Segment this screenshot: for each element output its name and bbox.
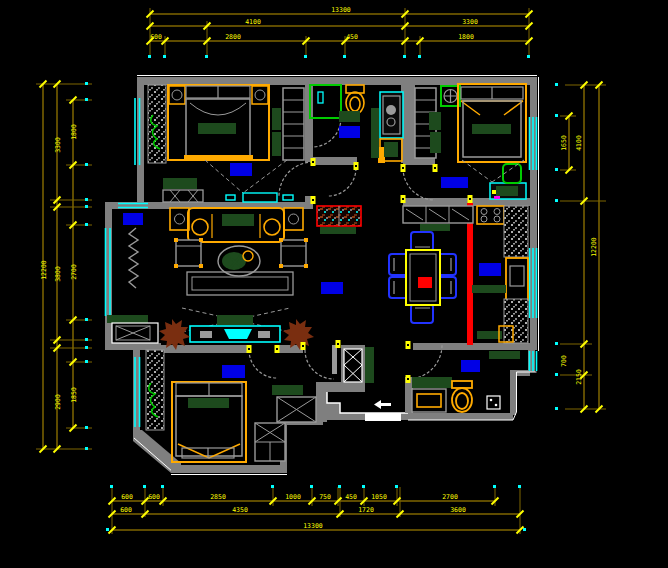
dimension-chain-right: 1650 4100 700 2150 12200 bbox=[555, 82, 606, 413]
room-label-kitchen bbox=[479, 263, 501, 276]
highlighted-wall-red bbox=[467, 203, 473, 345]
dining-chair bbox=[411, 232, 433, 251]
toilet-icon bbox=[452, 381, 472, 412]
sofa-cushion bbox=[222, 214, 254, 226]
door-arc bbox=[305, 350, 334, 379]
room-label-bathroom-bottom bbox=[461, 360, 480, 372]
dim-label: 600 bbox=[150, 33, 162, 41]
dim-label: 13300 bbox=[331, 6, 351, 14]
closet-hatch bbox=[148, 85, 166, 163]
arrow-icon bbox=[374, 400, 391, 409]
dim-label: 2900 bbox=[54, 394, 62, 410]
dim-label: 600 bbox=[120, 506, 132, 514]
dim-label: 2700 bbox=[442, 493, 458, 501]
door-arc bbox=[279, 162, 313, 196]
door-leaf bbox=[332, 345, 337, 374]
plant-icon bbox=[243, 251, 253, 261]
tv bbox=[217, 315, 253, 325]
counter-hatch bbox=[504, 299, 528, 343]
tv-cabinet bbox=[190, 326, 280, 342]
floor-drain bbox=[487, 396, 500, 409]
wardrobe-shelves bbox=[283, 88, 304, 160]
dim-label: 4100 bbox=[575, 135, 583, 151]
room-bedroom-top-left bbox=[148, 85, 313, 202]
shower-unit bbox=[380, 92, 403, 138]
counter bbox=[412, 377, 452, 388]
room-label-living-room bbox=[321, 282, 343, 294]
dimension-chain-top: 13300 4100 3300 600 2800 450 1800 bbox=[147, 6, 533, 58]
dim-label: 450 bbox=[346, 33, 358, 41]
dim-label: 750 bbox=[319, 493, 331, 501]
pillow bbox=[188, 398, 229, 408]
magenta-mark bbox=[494, 196, 500, 199]
dim-label: 1050 bbox=[371, 493, 387, 501]
dim-ticks bbox=[147, 11, 533, 45]
dim-label: 450 bbox=[345, 493, 357, 501]
dining-set bbox=[389, 232, 456, 323]
dim-label: 3600 bbox=[450, 506, 466, 514]
double-bed bbox=[168, 85, 269, 160]
desk-chair bbox=[503, 164, 521, 183]
room-label-bedroom-bottom-left bbox=[222, 365, 245, 378]
counter-hatch bbox=[504, 206, 528, 257]
dim-label: 13300 bbox=[303, 522, 323, 530]
room-label-bathroom-top bbox=[339, 126, 360, 138]
toilet-icon bbox=[346, 85, 364, 114]
room-label-bedroom-top-right bbox=[441, 177, 468, 188]
dim-endpoint-dots bbox=[85, 82, 88, 450]
dim-label: 1650 bbox=[560, 135, 568, 151]
walls bbox=[105, 76, 539, 475]
dim-label: 2800 bbox=[225, 33, 241, 41]
dim-label: 12200 bbox=[40, 260, 48, 280]
table-centerpiece bbox=[418, 277, 432, 288]
floor-plan-drawing: 13300 4100 3300 600 2800 450 1800 600 60… bbox=[0, 0, 668, 568]
pillow bbox=[472, 124, 511, 134]
canopy-bed bbox=[458, 84, 526, 162]
dim-label: 1720 bbox=[358, 506, 374, 514]
dim-label: 600 bbox=[121, 493, 133, 501]
dim-label: 12200 bbox=[590, 237, 598, 257]
dim-label: 2700 bbox=[70, 264, 78, 280]
dim-label: 1800 bbox=[458, 33, 474, 41]
room-label-living-window bbox=[123, 213, 143, 225]
white-sill bbox=[365, 413, 401, 421]
dim-label: 3300 bbox=[54, 137, 62, 153]
sofa-set bbox=[170, 208, 303, 242]
dim-label: 1000 bbox=[285, 493, 301, 501]
dimension-chain-left: 12200 3300 3800 2900 1800 2700 1850 bbox=[36, 81, 92, 453]
desk bbox=[490, 183, 526, 199]
vanity-cabinet bbox=[412, 389, 446, 412]
cad-canvas[interactable]: 13300 4100 3300 600 2800 450 1800 600 60… bbox=[0, 0, 668, 568]
curtain-zigzag bbox=[129, 228, 138, 288]
dim-label: 3800 bbox=[54, 266, 62, 282]
dim-label: 4350 bbox=[232, 506, 248, 514]
dim-label: 700 bbox=[560, 355, 568, 367]
dim-label: 3300 bbox=[462, 18, 478, 26]
door-arc bbox=[249, 350, 277, 378]
wardrobe-x bbox=[277, 397, 316, 422]
hallway-items bbox=[317, 206, 473, 234]
bathroom-door-green bbox=[310, 85, 341, 147]
door-arc bbox=[403, 168, 435, 200]
bay-window-seat bbox=[107, 315, 158, 343]
room-bathroom-top bbox=[310, 85, 403, 196]
dim-label: 2850 bbox=[210, 493, 226, 501]
cabinet bbox=[163, 190, 203, 202]
room-bathroom-bottom-right bbox=[408, 345, 520, 412]
pillow bbox=[198, 123, 236, 134]
dim-label: 1850 bbox=[70, 387, 78, 403]
dim-label: 600 bbox=[148, 493, 160, 501]
room-label-bedroom-top-left bbox=[230, 163, 252, 176]
dining-chair bbox=[411, 304, 433, 323]
entry-cabinets bbox=[403, 206, 473, 223]
sink-icon bbox=[506, 258, 528, 300]
shelf bbox=[163, 178, 197, 189]
dimension-chain-bottom: 600 600 2850 1000 750 450 1050 2700 600 … bbox=[106, 485, 526, 534]
stove-icon bbox=[477, 206, 504, 224]
shoe-cabinet-red bbox=[317, 206, 361, 226]
wardrobe-column bbox=[255, 423, 285, 461]
door-arc bbox=[328, 168, 356, 196]
dim-label: 2150 bbox=[575, 369, 583, 385]
dresser bbox=[226, 193, 293, 202]
dim-endpoint-dots bbox=[148, 55, 530, 58]
dim-label: 4100 bbox=[245, 18, 261, 26]
dim-endpoint-dots bbox=[555, 83, 558, 410]
double-bed bbox=[172, 382, 246, 462]
dim-label: 1800 bbox=[70, 124, 78, 140]
door-arc bbox=[408, 345, 442, 379]
